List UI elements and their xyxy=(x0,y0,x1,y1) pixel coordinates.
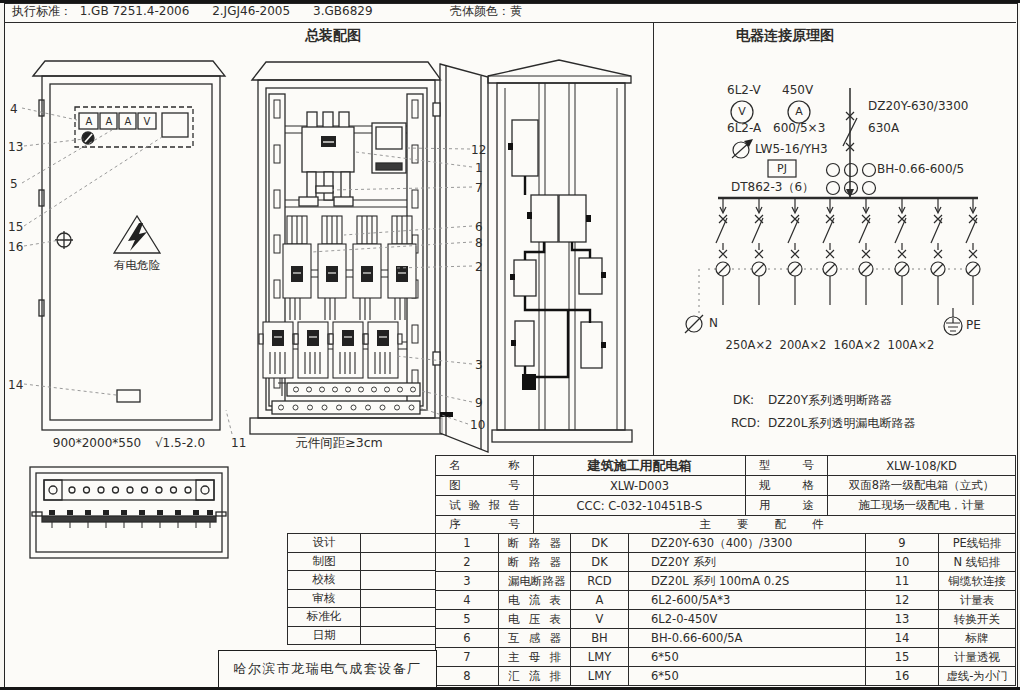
info-row: 试验报告 CCC: C-032-10451B-S 用途 施工现场一级配电，计量 xyxy=(436,496,1016,516)
part-code: DK xyxy=(571,553,629,572)
info-key-test-report: 试验报告 xyxy=(436,496,534,516)
pj-meter-label: PJ xyxy=(777,163,787,176)
callout-8: 8 xyxy=(475,237,483,249)
signoff-row: 标准化 xyxy=(288,608,436,627)
part-spec: DZ20Y 系列 xyxy=(629,553,866,572)
info-value-spec: 双面8路一级配电箱（立式） xyxy=(828,476,1016,496)
factory-name: 哈尔滨市龙瑞电气成套设备厂 xyxy=(233,660,422,678)
info-value-use: 施工现场一级配电，计量 xyxy=(828,496,1016,516)
callout-4: 4 xyxy=(10,103,18,115)
callout-2: 2 xyxy=(475,261,483,273)
signoff-label-check: 校核 xyxy=(288,571,361,590)
part-code: BH xyxy=(571,629,629,648)
branch-rating-4: 100A×2 xyxy=(888,339,935,352)
schematic-section-title: 电器连接原理图 xyxy=(736,27,834,43)
part-no2: 12 xyxy=(866,591,939,610)
signoff-label-date: 日期 xyxy=(288,626,361,645)
callout-12: 12 xyxy=(471,144,486,156)
signoff-row: 设计 xyxy=(288,534,436,553)
part-name2: 虚线-为小门 xyxy=(939,667,1016,686)
cabinet-size-label: 900*2000*550 xyxy=(53,437,141,451)
part-name: 电流表 xyxy=(499,591,571,610)
info-key-drawing-no: 图号 xyxy=(436,476,534,496)
main-breaker-rating-label: 630A xyxy=(868,122,899,136)
panel-meter-label-3: A xyxy=(125,116,132,128)
signoff-value-cell xyxy=(361,608,436,627)
part-no: 8 xyxy=(436,667,499,686)
panel-meter-label-1: A xyxy=(86,116,93,128)
ammeter-model-label: 6L2-A xyxy=(727,122,761,136)
part-name: 漏电断路器 xyxy=(499,572,571,591)
branch-rating-1: 250A×2 xyxy=(726,339,773,352)
signoff-value-cell xyxy=(361,626,436,645)
callout-16: 16 xyxy=(8,241,23,253)
info-value-model: XLW-108/KD xyxy=(828,456,1016,476)
seq-header-cell: 序号 xyxy=(436,516,534,534)
part-no2: 13 xyxy=(866,610,939,629)
panel-meter-label-4: V xyxy=(144,116,151,128)
part-name2: PE线铝排 xyxy=(939,534,1016,553)
part-name: 汇流排 xyxy=(499,667,571,686)
parts-row: 4 电流表 A 6L2-600/5A*3 12 计量表 xyxy=(436,591,1016,610)
part-no: 4 xyxy=(436,591,499,610)
main-parts-header-cell: 主要配件 xyxy=(534,516,1016,534)
callout-6: 6 xyxy=(475,221,483,233)
part-no2: 15 xyxy=(866,648,939,667)
ct-model-label: BH-0.66-600/5 xyxy=(877,163,964,177)
note-dk-desc: DZ20Y系列透明断路器 xyxy=(768,394,892,408)
part-name2: 计量表 xyxy=(939,591,1016,610)
part-spec: 6*50 xyxy=(629,667,866,686)
engineering-drawing-page: { "header": { "standards": "执行标准： 1.GB 7… xyxy=(0,0,1020,690)
info-key-use: 用途 xyxy=(746,496,828,516)
branch-rating-3: 160A×2 xyxy=(834,339,881,352)
busbar-detail-drawing xyxy=(30,467,228,558)
note-rcd-desc: DZ20L系列透明漏电断路器 xyxy=(768,417,915,431)
part-code: LMY xyxy=(571,667,629,686)
signoff-value-cell xyxy=(361,589,436,608)
branch-rating-2: 200A×2 xyxy=(780,339,827,352)
part-name2: 计量透视 xyxy=(939,648,1016,667)
callout-15: 15 xyxy=(8,221,23,233)
part-no2: 16 xyxy=(866,667,939,686)
ct-ratio-label: 600/5×3 xyxy=(773,122,825,136)
cabinet-finish-label: √1.5-2.0 xyxy=(155,437,205,451)
info-value-name: 建筑施工用配电箱 xyxy=(534,456,746,476)
middle-cabinet-drawing xyxy=(250,62,488,452)
voltmeter-model-label: 6L2-V xyxy=(727,84,761,98)
signoff-row: 制图 xyxy=(288,552,436,571)
part-code: DK xyxy=(571,534,629,553)
callout-11: 11 xyxy=(231,437,246,449)
parts-row: 1 断路器 DK DZ20Y-630（400）/3300 9 PE线铝排 xyxy=(436,534,1016,553)
electric-danger-warning: 有电危险 xyxy=(114,259,160,272)
shell-color-text: 壳体颜色：黄 xyxy=(450,5,522,19)
part-name2: 铜缆软连接 xyxy=(939,572,1016,591)
part-spec: DZ20Y-630（400）/3300 xyxy=(629,534,866,553)
part-name2: 标牌 xyxy=(939,629,1016,648)
info-key-spec: 规格 xyxy=(746,476,828,496)
info-key-model: 型号 xyxy=(746,456,828,476)
component-spacing-caption: 元件间距≥3cm xyxy=(295,436,382,450)
info-table: 名称 建筑施工用配电箱 型号 XLW-108/KD 图号 XLW-D003 规格… xyxy=(435,455,1016,534)
signoff-label-draft: 制图 xyxy=(288,552,361,571)
info-row: 序号 主要配件 xyxy=(436,516,1016,534)
factory-name-box: 哈尔滨市龙瑞电气成套设备厂 xyxy=(218,650,437,688)
standards-text: 执行标准： 1.GB 7251.4-2006 2.JGJ46-2005 3.GB… xyxy=(12,5,373,19)
signoff-row: 审核 xyxy=(288,589,436,608)
part-no: 3 xyxy=(436,572,499,591)
parts-row: 6 互感器 BH BH-0.66-600/5A 14 标牌 xyxy=(436,629,1016,648)
signoff-label-design: 设计 xyxy=(288,534,361,553)
panel-meter-label-2: A xyxy=(106,116,113,128)
part-name: 断路器 xyxy=(499,534,571,553)
part-name: 互感器 xyxy=(499,629,571,648)
part-no: 5 xyxy=(436,610,499,629)
right-cabinet-drawing xyxy=(488,60,632,442)
part-spec: 6L2-0-450V xyxy=(629,610,866,629)
callout-10: 10 xyxy=(470,419,485,431)
callout-9: 9 xyxy=(475,397,483,409)
part-no: 1 xyxy=(436,534,499,553)
signoff-value-cell xyxy=(361,571,436,590)
signoff-table: 设计 制图 校核 审核 标准化 日期 xyxy=(287,533,436,645)
callout-5: 5 xyxy=(10,178,18,190)
info-value-drawing-no: XLW-D003 xyxy=(534,476,746,496)
info-row: 名称 建筑施工用配电箱 型号 XLW-108/KD xyxy=(436,456,1016,476)
note-rcd-abbr: RCD: xyxy=(731,417,760,431)
ammeter-symbol: A xyxy=(795,106,803,119)
note-dk-abbr: DK: xyxy=(733,394,754,408)
energy-meter-model-label: DT862-3（6） xyxy=(731,181,814,195)
signoff-value-cell xyxy=(361,534,436,553)
signoff-row: 校核 xyxy=(288,571,436,590)
part-name: 主母排 xyxy=(499,648,571,667)
part-spec: 6*50 xyxy=(629,648,866,667)
info-row: 图号 XLW-D003 规格 双面8路一级配电箱（立式） xyxy=(436,476,1016,496)
callout-14: 14 xyxy=(8,379,23,391)
callout-7: 7 xyxy=(475,182,483,194)
part-spec: DZ20L 系列 100mA 0.2S xyxy=(629,572,866,591)
part-name2: N 线铝排 xyxy=(939,553,1016,572)
signoff-row: 日期 xyxy=(288,626,436,645)
assembly-section-title: 总装配图 xyxy=(305,27,361,43)
part-code: V xyxy=(571,610,629,629)
parts-row: 8 汇流排 LMY 6*50 16 虚线-为小门 xyxy=(436,667,1016,686)
callout-1: 1 xyxy=(475,162,483,174)
info-value-test-report: CCC: C-032-10451B-S xyxy=(534,496,746,516)
part-no2: 9 xyxy=(866,534,939,553)
part-spec: BH-0.66-600/5A xyxy=(629,629,866,648)
main-breaker-model-label: DZ20Y-630/3300 xyxy=(868,100,968,114)
part-spec: 6L2-600/5A*3 xyxy=(629,591,866,610)
pe-label: PE xyxy=(966,319,981,333)
part-no: 2 xyxy=(436,553,499,572)
part-no: 7 xyxy=(436,648,499,667)
part-no2: 10 xyxy=(866,553,939,572)
parts-row: 2 断路器 DK DZ20Y 系列 10 N 线铝排 xyxy=(436,553,1016,572)
part-name: 电压表 xyxy=(499,610,571,629)
parts-table: 1 断路器 DK DZ20Y-630（400）/3300 9 PE线铝排 2 断… xyxy=(435,533,1016,686)
parts-row: 7 主母排 LMY 6*50 15 计量透视 xyxy=(436,648,1016,667)
neutral-label: N xyxy=(709,317,718,331)
part-name: 断路器 xyxy=(499,553,571,572)
parts-row: 3 漏电断路器 RCD DZ20L 系列 100mA 0.2S 11 铜缆软连接 xyxy=(436,572,1016,591)
part-code: A xyxy=(571,591,629,610)
part-name2: 转换开关 xyxy=(939,610,1016,629)
signoff-value-cell xyxy=(361,552,436,571)
callout-3: 3 xyxy=(475,359,483,371)
part-code: RCD xyxy=(571,572,629,591)
voltage-label: 450V xyxy=(782,84,813,98)
part-no2: 14 xyxy=(866,629,939,648)
part-no2: 11 xyxy=(866,572,939,591)
parts-row: 5 电压表 V 6L2-0-450V 13 转换开关 xyxy=(436,610,1016,629)
selector-switch-model-label: LW5-16/YH3 xyxy=(755,143,828,157)
part-code: LMY xyxy=(571,648,629,667)
voltmeter-symbol: V xyxy=(738,106,746,119)
signoff-label-review: 审核 xyxy=(288,589,361,608)
callout-13: 13 xyxy=(8,141,23,153)
info-key-name: 名称 xyxy=(436,456,534,476)
signoff-label-standardization: 标准化 xyxy=(288,608,361,627)
part-no: 6 xyxy=(436,629,499,648)
